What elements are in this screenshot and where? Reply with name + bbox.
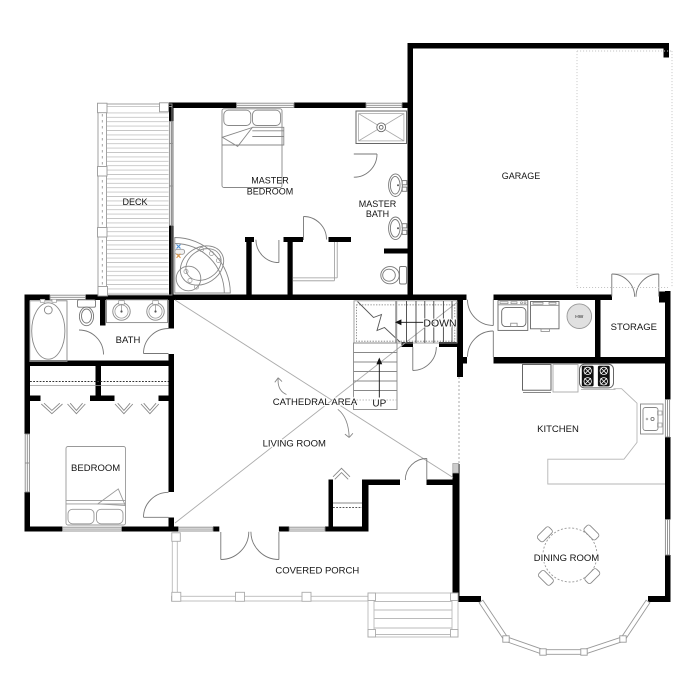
svg-text:BATH: BATH — [116, 335, 141, 346]
svg-text:HW: HW — [575, 314, 583, 320]
svg-text:CATHEDRAL AREA: CATHEDRAL AREA — [273, 397, 358, 408]
svg-text:DINING ROOM: DINING ROOM — [534, 553, 600, 564]
svg-text:COVERED PORCH: COVERED PORCH — [275, 566, 359, 577]
svg-text:LIVING ROOM: LIVING ROOM — [263, 439, 326, 450]
svg-text:GARAGE: GARAGE — [502, 171, 541, 181]
svg-text:BEDROOM: BEDROOM — [71, 463, 120, 474]
svg-text:DECK: DECK — [122, 197, 147, 207]
svg-text:BATH: BATH — [366, 209, 389, 219]
svg-text:STORAGE: STORAGE — [611, 322, 657, 333]
svg-text:DOWN: DOWN — [423, 318, 456, 330]
svg-text:BEDROOM: BEDROOM — [247, 186, 294, 196]
svg-text:MASTER: MASTER — [359, 199, 397, 209]
svg-text:KITCHEN: KITCHEN — [537, 424, 579, 435]
svg-text:MASTER: MASTER — [251, 176, 289, 186]
svg-text:UP: UP — [372, 398, 386, 409]
